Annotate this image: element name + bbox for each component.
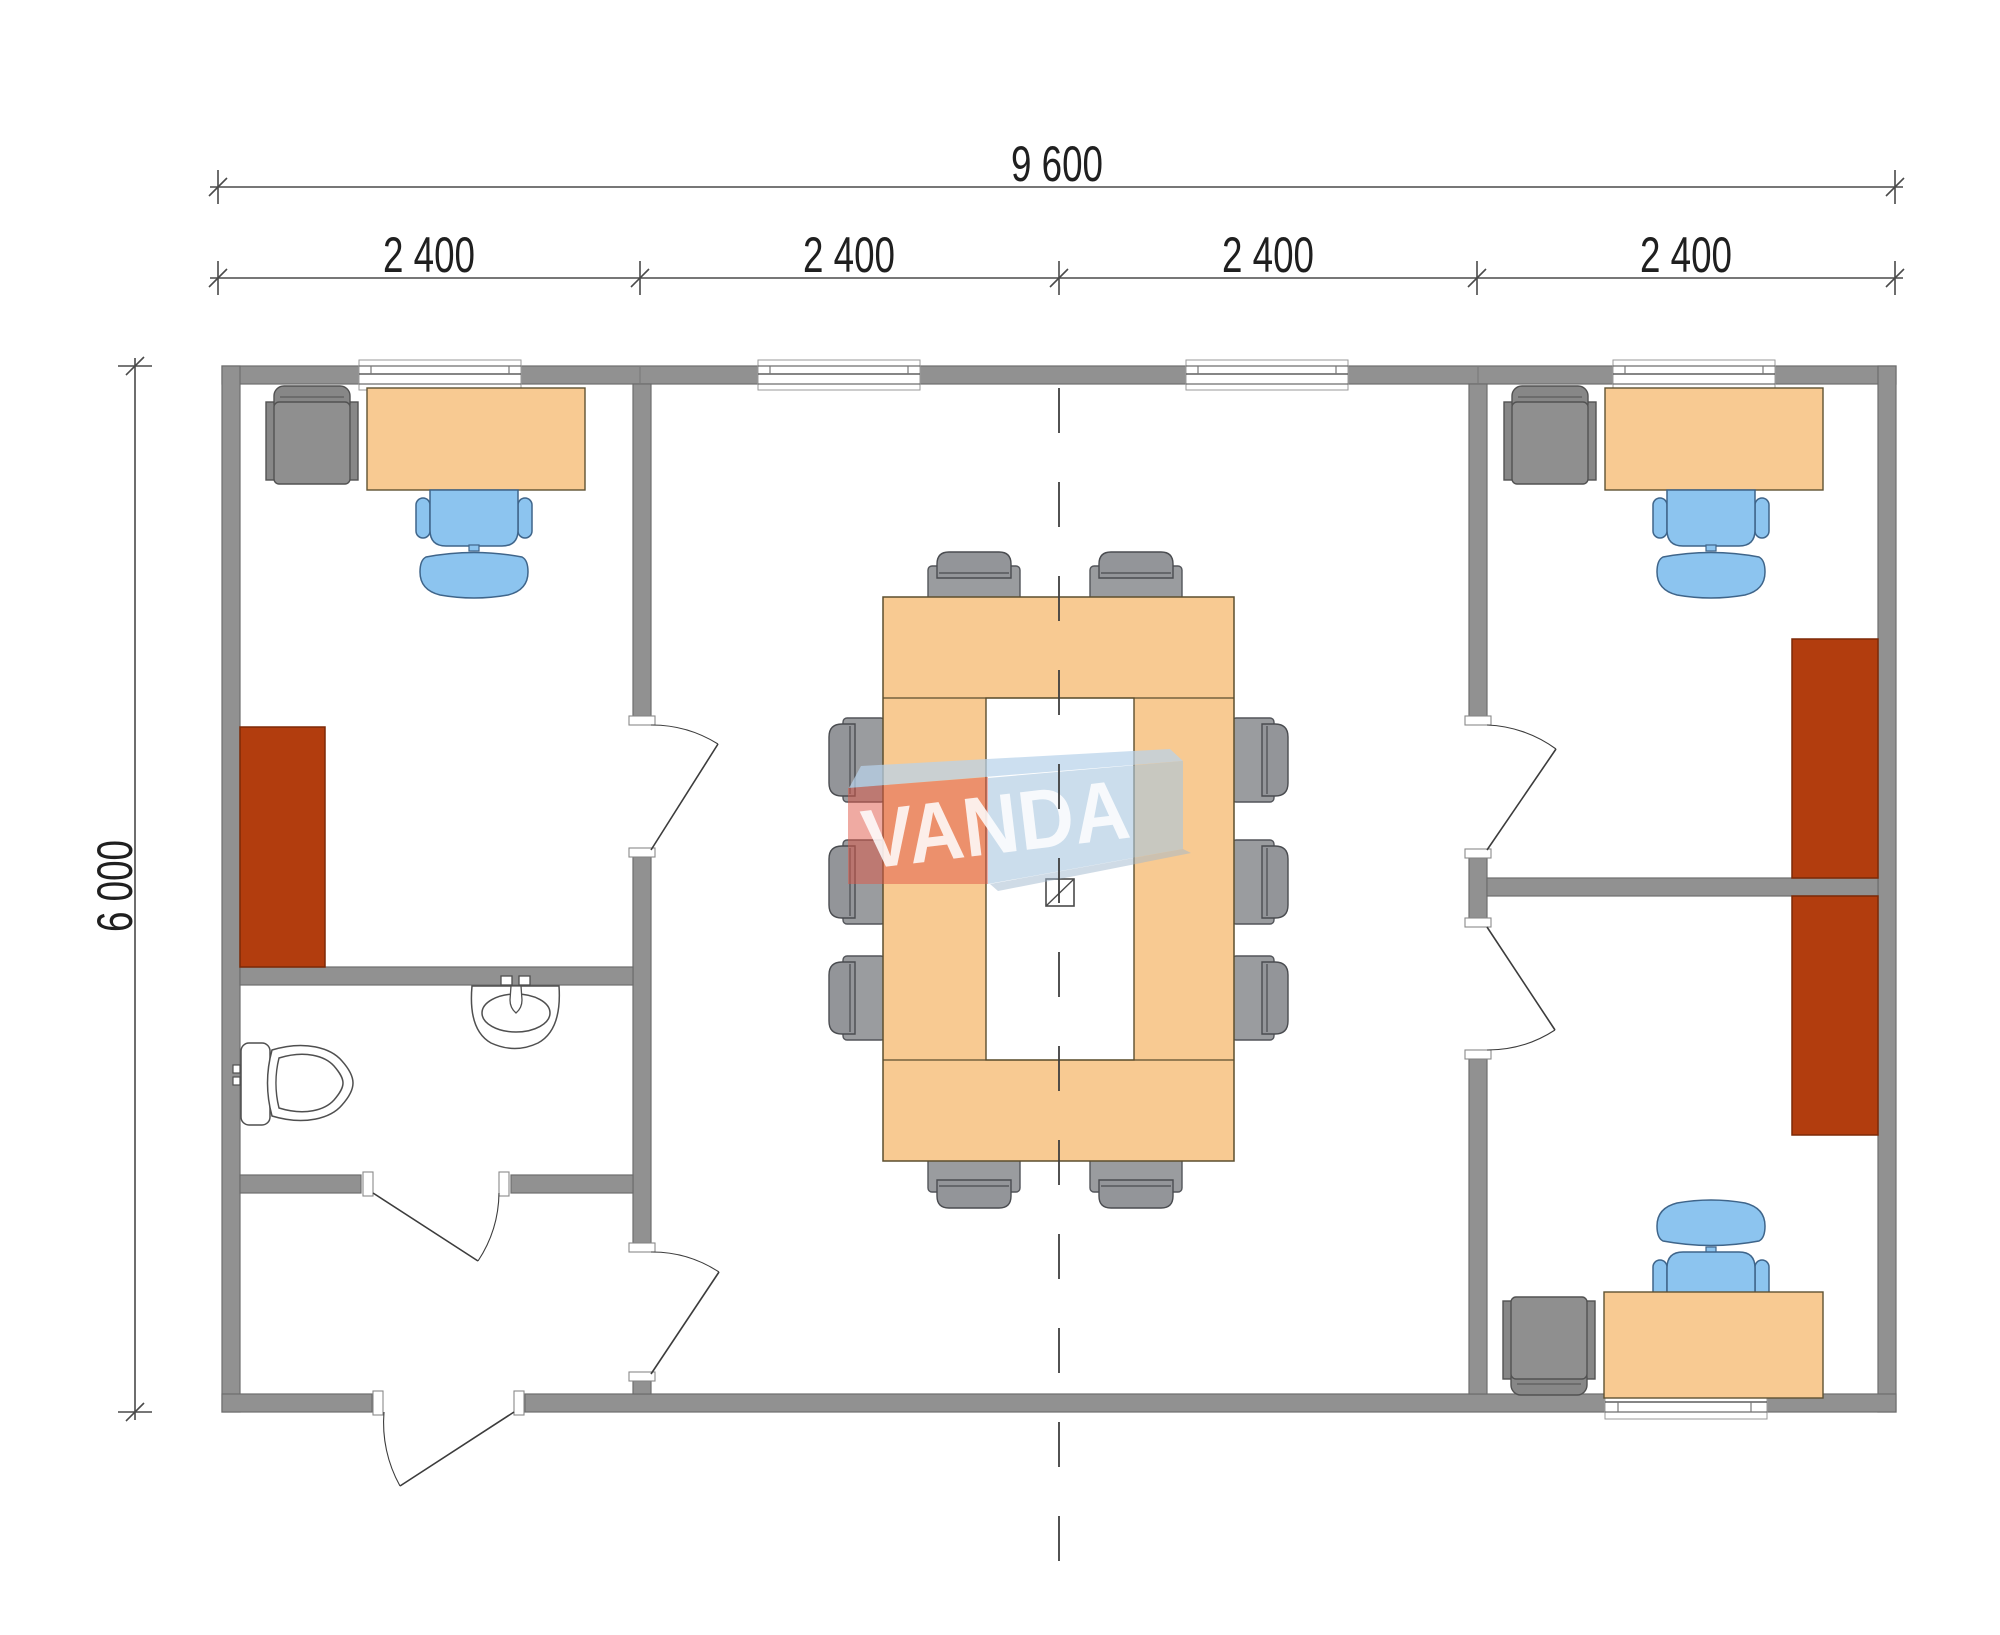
- svg-text:2 400: 2 400: [1222, 227, 1314, 283]
- svg-text:2 400: 2 400: [1640, 227, 1732, 283]
- svg-text:2 400: 2 400: [383, 227, 475, 283]
- svg-text:2 400: 2 400: [803, 227, 895, 283]
- svg-text:9 600: 9 600: [1011, 136, 1103, 192]
- svg-text:6 000: 6 000: [87, 840, 143, 932]
